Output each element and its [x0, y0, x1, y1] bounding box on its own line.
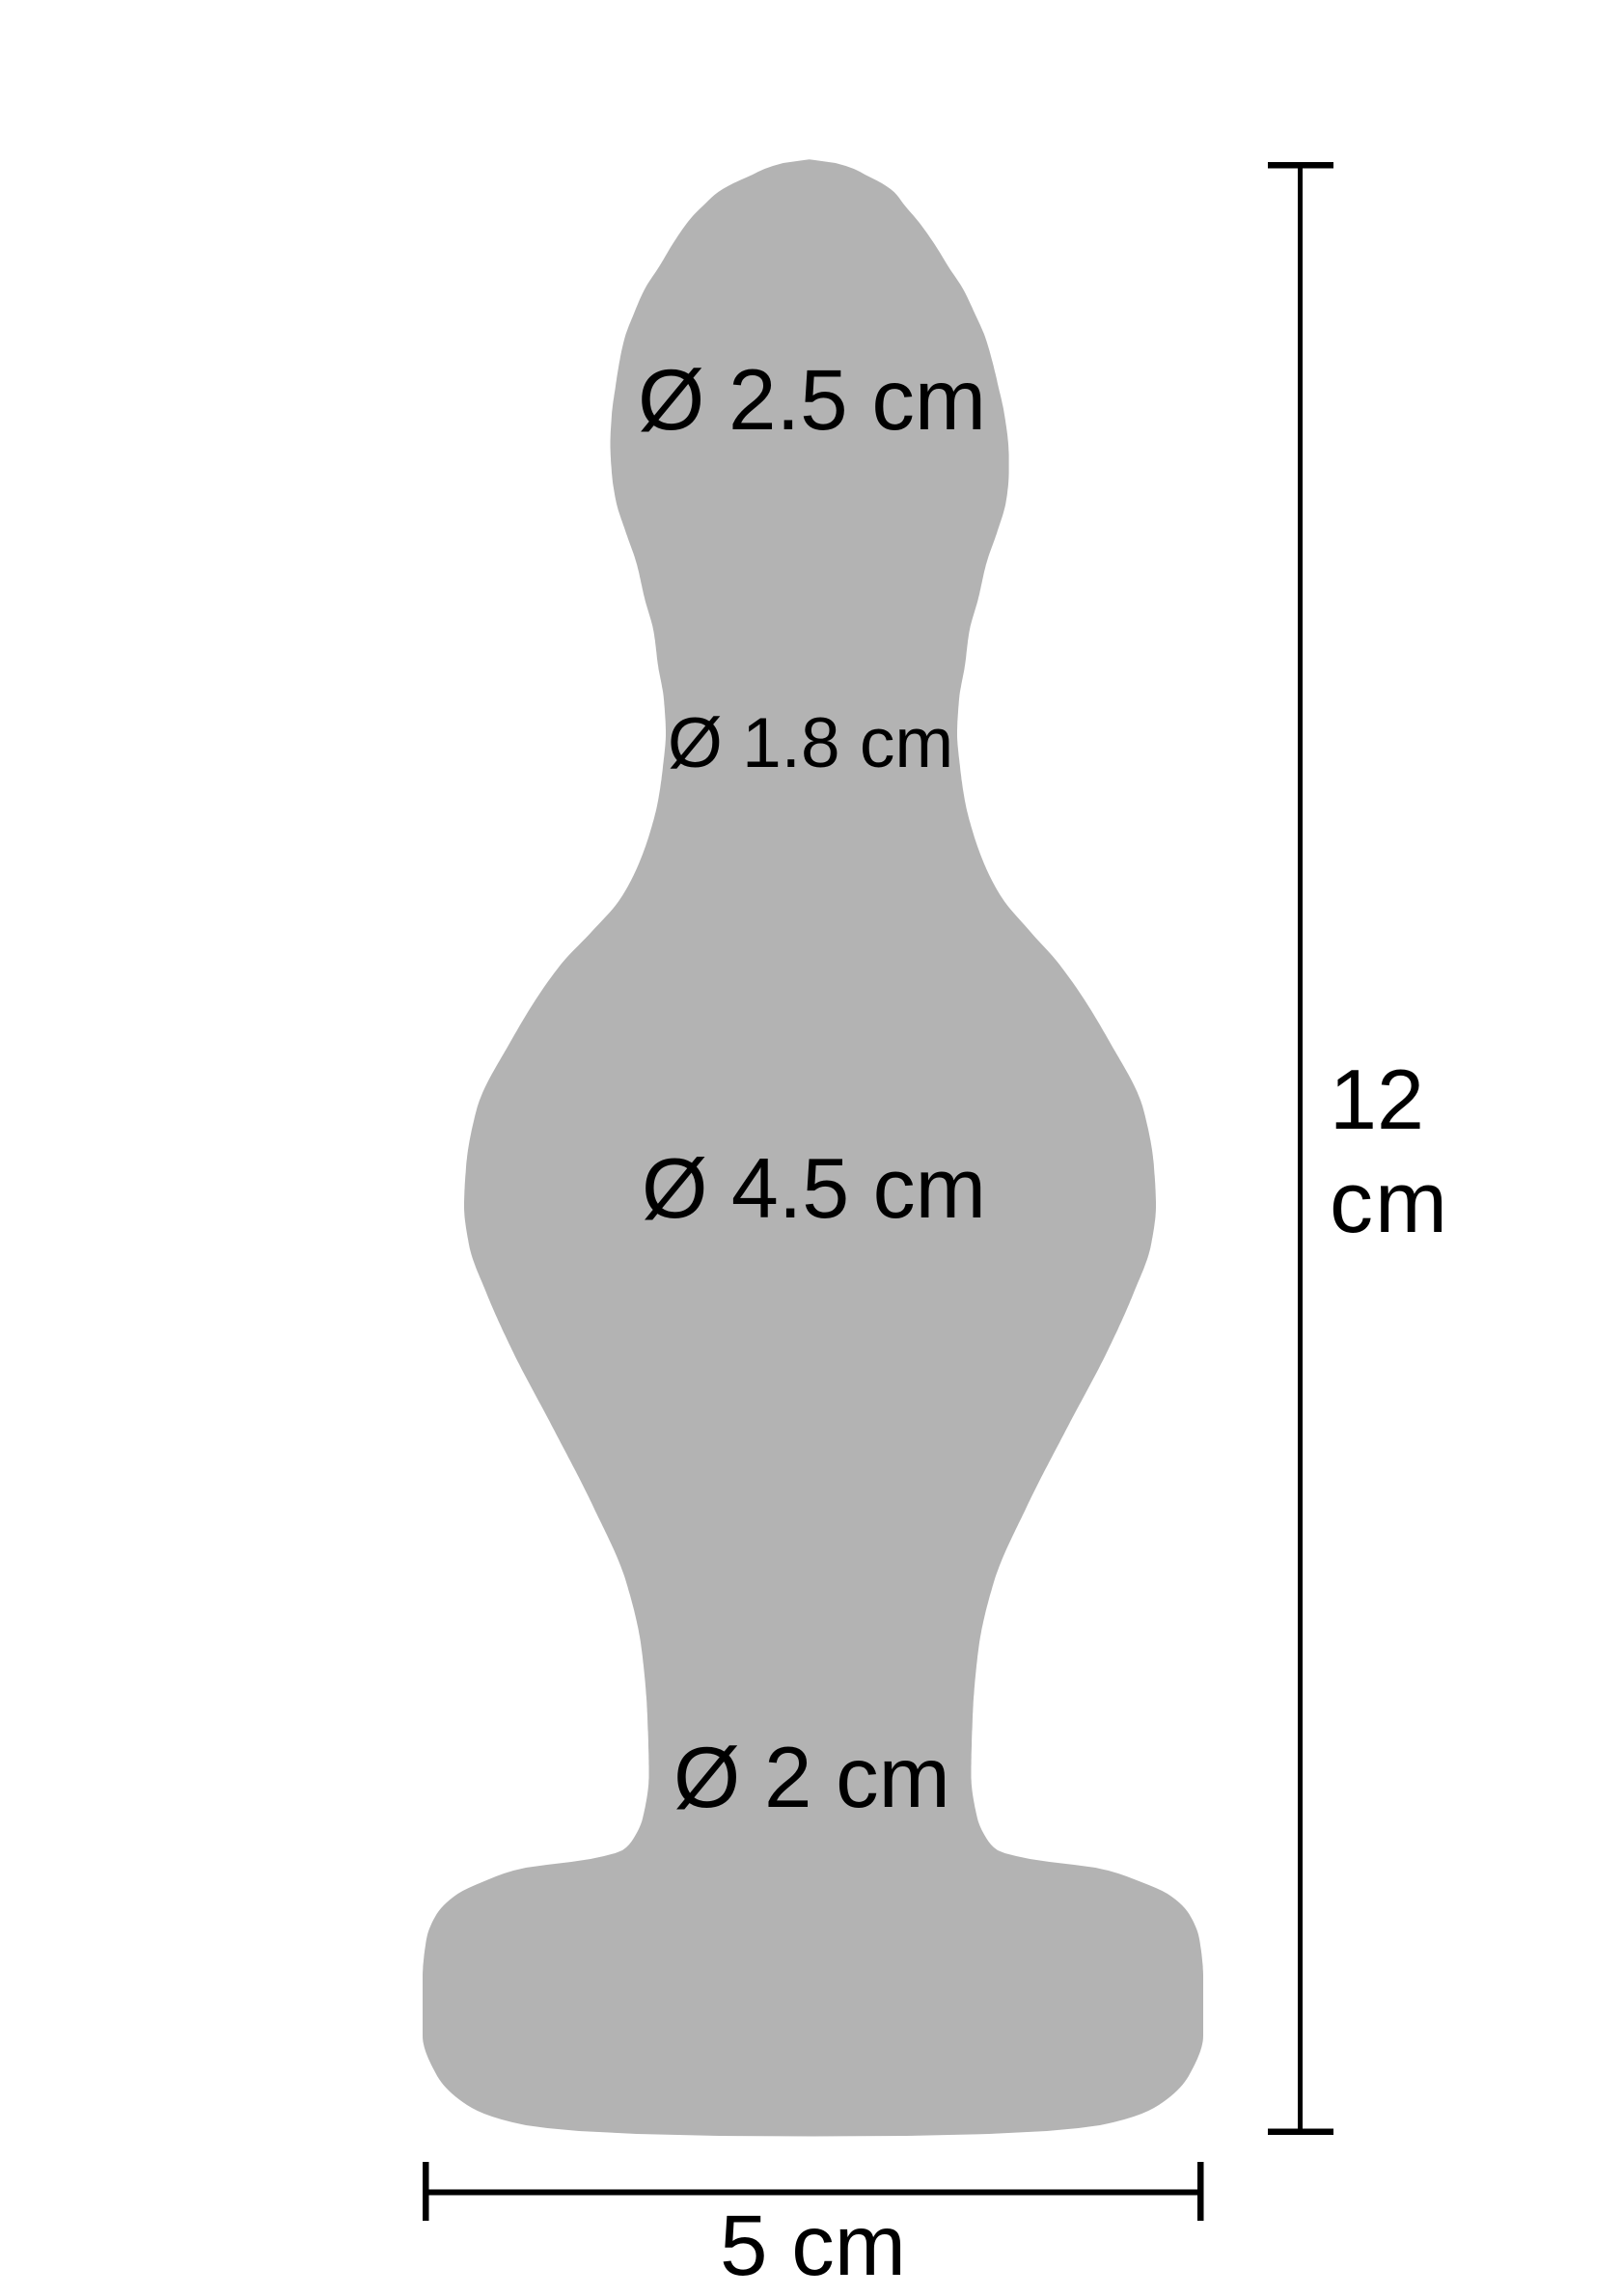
- svg-text:Ø 1.8 cm: Ø 1.8 cm: [668, 704, 953, 782]
- svg-text:12: 12: [1330, 1052, 1424, 1147]
- svg-text:5 cm: 5 cm: [720, 2197, 906, 2293]
- svg-text:Ø 4.5 cm: Ø 4.5 cm: [642, 1140, 986, 1236]
- svg-text:cm: cm: [1330, 1155, 1449, 1251]
- svg-text:Ø 2.5 cm: Ø 2.5 cm: [638, 351, 986, 448]
- svg-text:Ø 2 cm: Ø 2 cm: [673, 1729, 950, 1825]
